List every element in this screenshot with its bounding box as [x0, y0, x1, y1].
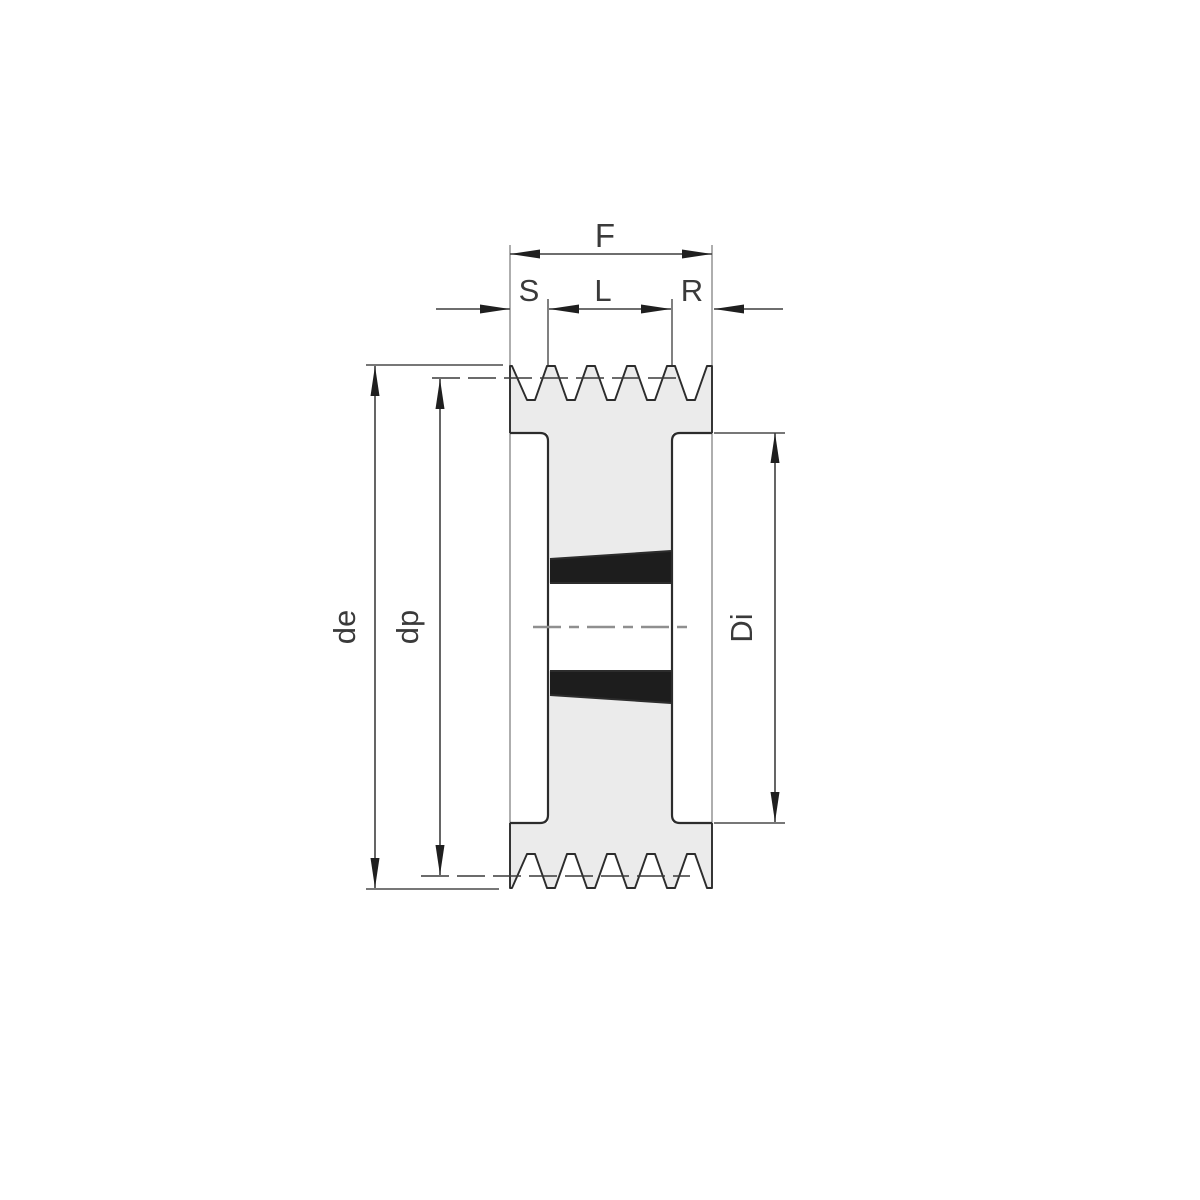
dimension-dp-arrow-bottom [436, 845, 445, 875]
label-de: de [327, 610, 362, 644]
label-S: S [519, 273, 540, 308]
dimension-S-arrow [480, 305, 510, 314]
label-dp: dp [390, 610, 425, 644]
dimension-Di-arrow-bottom [771, 792, 780, 822]
dimension-de-arrow-bottom [371, 858, 380, 888]
dimension-dp-arrow-top [436, 379, 445, 409]
label-R: R [681, 273, 703, 308]
dimension-L-arrow-right [641, 305, 671, 314]
label-Di: Di [724, 613, 759, 642]
dimension-F-arrow-right [682, 250, 712, 259]
dimension-L-arrow-left [549, 305, 579, 314]
pulley-technical-drawing: F S L R de dp Di [0, 0, 1200, 1200]
label-L: L [594, 273, 611, 308]
label-F: F [595, 217, 615, 254]
bottom-rim-fill [510, 823, 712, 888]
drawing-canvas: F S L R de dp Di [0, 0, 1200, 1200]
dimension-F-arrow-left [510, 250, 540, 259]
dimension-R-arrow [714, 305, 744, 314]
dimension-de-arrow-top [371, 366, 380, 396]
dimension-Di-arrow-top [771, 433, 780, 463]
